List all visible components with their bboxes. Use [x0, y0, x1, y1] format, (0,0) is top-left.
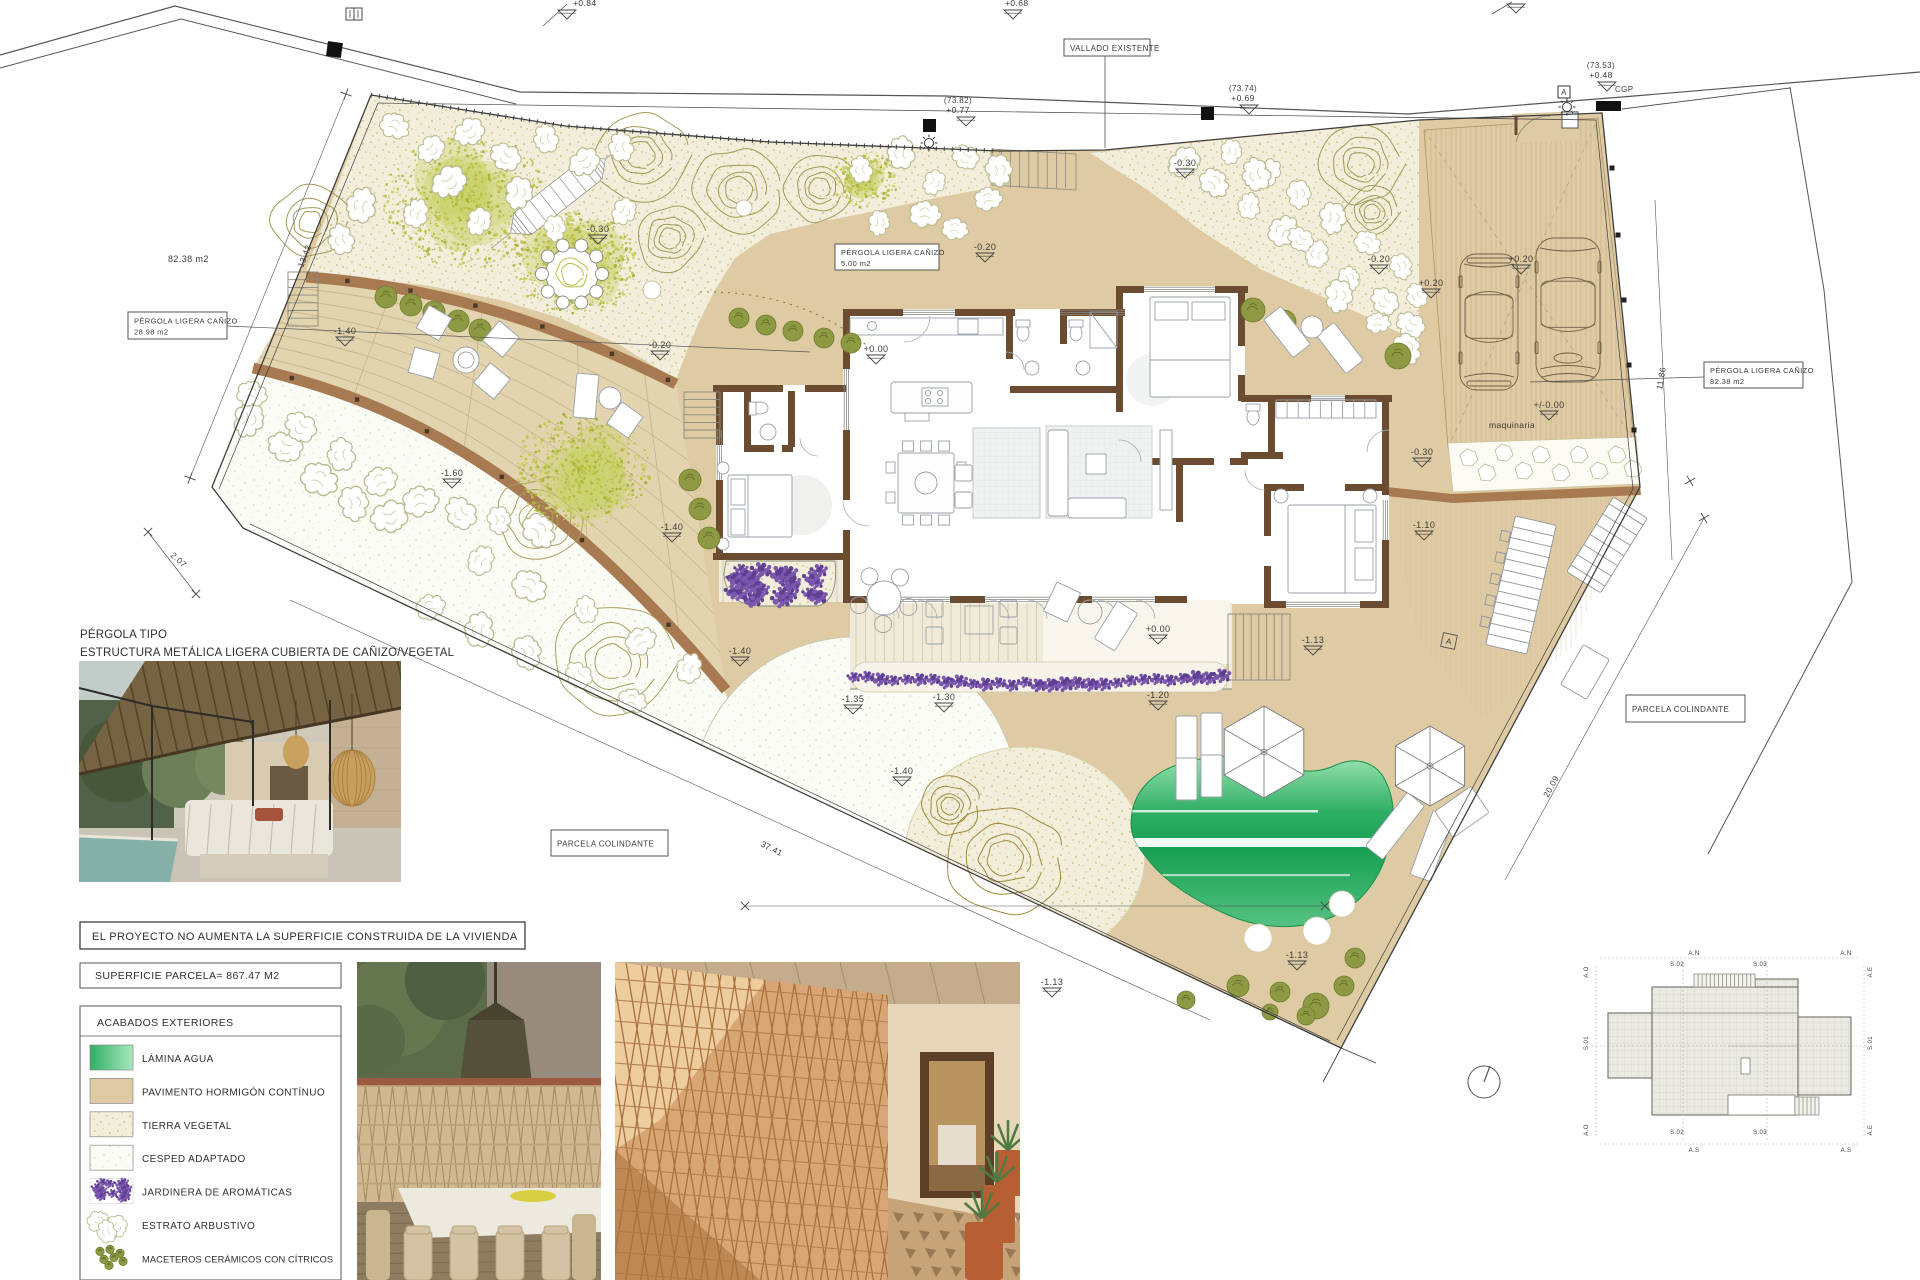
- svg-text:-1.13: -1.13: [1286, 950, 1309, 960]
- svg-text:PÉRGOLA LIGERA CAÑIZO: PÉRGOLA LIGERA CAÑIZO: [841, 248, 945, 257]
- svg-text:MACETEROS CERÁMICOS CON CÍTRIC: MACETEROS CERÁMICOS CON CÍTRICOS: [142, 1254, 333, 1264]
- svg-text:A.O: A.O: [1584, 1124, 1590, 1136]
- svg-text:+0.00: +0.00: [1146, 624, 1171, 634]
- svg-text:28.98 m2: 28.98 m2: [134, 328, 168, 337]
- svg-text:-1.40: -1.40: [334, 326, 357, 336]
- svg-text:S.01: S.01: [1584, 1036, 1590, 1050]
- svg-text:maquinaria: maquinaria: [1489, 420, 1535, 430]
- svg-text:-1.40: -1.40: [729, 646, 752, 656]
- svg-text:ACABADOS EXTERIORES: ACABADOS EXTERIORES: [97, 1017, 234, 1029]
- svg-text:TIERRA VEGETAL: TIERRA VEGETAL: [142, 1121, 232, 1132]
- svg-text:+0.48: +0.48: [1589, 70, 1613, 80]
- svg-text:LÁMINA AGUA: LÁMINA AGUA: [142, 1052, 214, 1065]
- svg-text:(73.82): (73.82): [944, 96, 972, 105]
- svg-text:A: A: [1561, 88, 1567, 97]
- svg-text:(73.74): (73.74): [1229, 84, 1257, 93]
- svg-text:A.S: A.S: [1689, 1148, 1700, 1154]
- svg-text:S.01: S.01: [1868, 1036, 1874, 1050]
- svg-text:-1.40: -1.40: [891, 766, 914, 776]
- svg-text:-0.30: -0.30: [587, 224, 610, 234]
- svg-text:+0.00: +0.00: [864, 344, 889, 354]
- svg-text:-1.30: -1.30: [933, 692, 956, 702]
- svg-text:+0.84: +0.84: [573, 0, 597, 8]
- svg-text:VALLADO EXISTENTE: VALLADO EXISTENTE: [1070, 44, 1160, 53]
- svg-text:5.00 m2: 5.00 m2: [841, 259, 871, 268]
- svg-text:PÉRGOLA LIGERA CAÑIZO: PÉRGOLA LIGERA CAÑIZO: [1710, 366, 1814, 375]
- svg-text:-1.35: -1.35: [842, 694, 865, 704]
- svg-text:+0.69: +0.69: [1231, 93, 1255, 103]
- svg-text:+0.20: +0.20: [1419, 278, 1444, 288]
- svg-text:-1.13: -1.13: [1041, 977, 1064, 987]
- svg-text:-1.40: -1.40: [661, 522, 684, 532]
- svg-text:S.03: S.03: [1753, 1130, 1767, 1136]
- svg-text:S.03: S.03: [1753, 962, 1767, 968]
- svg-text:+/-0.00: +/-0.00: [1533, 400, 1564, 410]
- svg-text:S.02: S.02: [1670, 962, 1684, 968]
- svg-text:ESTRATO ARBUSTIVO: ESTRATO ARBUSTIVO: [142, 1221, 255, 1232]
- svg-text:EL PROYECTO NO AUMENTA LA SUPE: EL PROYECTO NO AUMENTA LA SUPERFICIE CON…: [92, 931, 518, 943]
- svg-text:-1.60: -1.60: [441, 468, 464, 478]
- svg-text:-0.20: -0.20: [649, 340, 672, 350]
- svg-text:(73.53): (73.53): [1587, 61, 1615, 70]
- svg-text:82.38 m2: 82.38 m2: [1710, 377, 1744, 386]
- svg-text:PARCELA COLINDANTE: PARCELA COLINDANTE: [557, 840, 654, 849]
- svg-text:A.N: A.N: [1688, 951, 1699, 957]
- svg-text:+0.20: +0.20: [1509, 254, 1534, 264]
- svg-text:+0.77: +0.77: [946, 105, 970, 115]
- svg-text:S.02: S.02: [1670, 1130, 1684, 1136]
- svg-text:+0.68: +0.68: [1005, 0, 1029, 8]
- svg-text:CESPED ADAPTADO: CESPED ADAPTADO: [142, 1154, 246, 1165]
- svg-text:82.38 m2: 82.38 m2: [168, 254, 209, 264]
- svg-text:-0.30: -0.30: [1411, 447, 1434, 457]
- svg-text:PARCELA COLINDANTE: PARCELA COLINDANTE: [1632, 705, 1729, 714]
- svg-text:-1.10: -1.10: [1413, 520, 1436, 530]
- svg-text:PAVIMENTO HORMIGÓN CONTÍNUO: PAVIMENTO HORMIGÓN CONTÍNUO: [142, 1085, 325, 1098]
- svg-text:-0.30: -0.30: [1174, 158, 1197, 168]
- svg-text:JARDINERA DE AROMÁTICAS: JARDINERA DE AROMÁTICAS: [142, 1186, 292, 1199]
- svg-text:ESTRUCTURA METÁLICA LIGERA CUB: ESTRUCTURA METÁLICA LIGERA CUBIERTA DE C…: [80, 646, 455, 659]
- svg-text:-0.20: -0.20: [974, 242, 997, 252]
- svg-text:SUPERFICIE PARCELA= 867.47 M2: SUPERFICIE PARCELA= 867.47 M2: [95, 970, 279, 982]
- svg-text:-0.20: -0.20: [1368, 254, 1391, 264]
- svg-text:A.N: A.N: [1840, 951, 1851, 957]
- svg-text:PÉRGOLA LIGERA CAÑIZO: PÉRGOLA LIGERA CAÑIZO: [134, 317, 238, 326]
- svg-text:A.O: A.O: [1584, 966, 1590, 978]
- svg-text:-1.13: -1.13: [1302, 635, 1325, 645]
- svg-text:-1.20: -1.20: [1147, 690, 1170, 700]
- svg-text:CGP: CGP: [1615, 85, 1634, 94]
- svg-text:PÉRGOLA TIPO: PÉRGOLA TIPO: [80, 628, 167, 641]
- svg-text:A.S: A.S: [1841, 1148, 1852, 1154]
- svg-text:A.E: A.E: [1868, 1125, 1874, 1136]
- svg-text:A.E: A.E: [1868, 967, 1874, 978]
